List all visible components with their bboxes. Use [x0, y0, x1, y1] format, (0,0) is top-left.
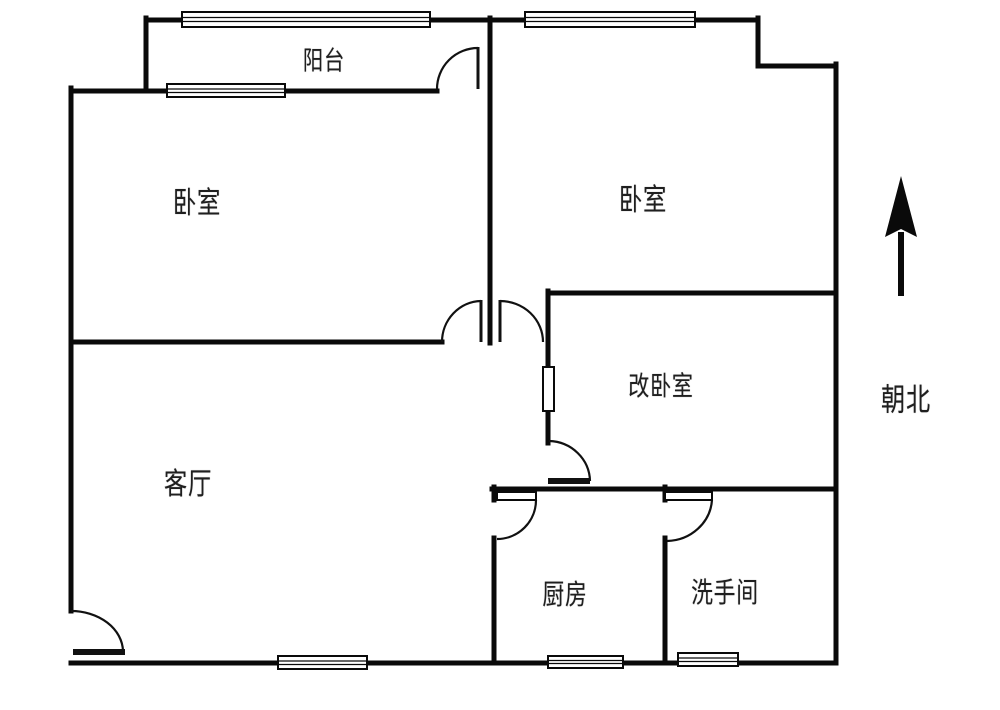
bathroom-window: [678, 653, 738, 666]
room-label-kitchen: 厨房: [542, 573, 587, 613]
bedroom-left-door: [442, 300, 481, 342]
north-arrow-icon: [885, 176, 917, 296]
kitchen-window: [548, 656, 623, 668]
bedroom-right-window: [525, 12, 695, 27]
balcony-door: [437, 47, 478, 89]
room-label-bedroom-left: 卧室: [173, 178, 221, 222]
living-room-window: [278, 656, 367, 669]
room-label-bedroom-right: 卧室: [619, 175, 667, 219]
room-label-balcony: 阳台: [303, 41, 345, 78]
room-label-bathroom: 洗手间: [691, 571, 759, 611]
entry-door: [71, 611, 125, 652]
bedroom-right-door: [500, 300, 543, 342]
walls: [71, 18, 836, 663]
floor-plan-drawing: [0, 0, 1000, 710]
bathroom-door: [667, 500, 712, 541]
balcony-window: [182, 12, 430, 27]
room-label-converted-bedroom: 改卧室: [628, 365, 694, 404]
kitchen-door-leaf: [497, 492, 536, 500]
bathroom-door-leaf: [665, 492, 712, 500]
doors: [71, 47, 712, 652]
kitchen-door: [497, 500, 536, 539]
converted-bedroom-door: [548, 441, 590, 481]
converted-bedroom-wall-pane: [543, 367, 554, 411]
bedroom-left-window: [167, 84, 285, 97]
room-label-living-room: 客厅: [164, 459, 212, 503]
compass-label: 朝北: [881, 375, 931, 420]
floor-plan: 阳台 卧室 卧室 改卧室 客厅 厨房 洗手间 朝北: [0, 0, 1000, 710]
